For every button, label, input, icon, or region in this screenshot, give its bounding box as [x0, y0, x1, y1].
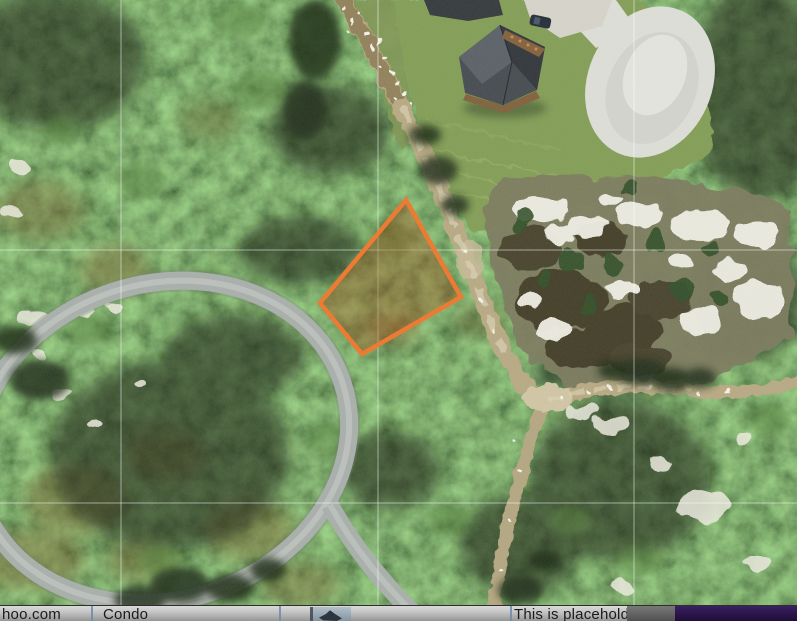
house-photo-icon — [319, 609, 342, 621]
cell-divider — [510, 606, 512, 621]
description-cell[interactable]: This is placehold — [514, 606, 629, 621]
grey-overlay-box — [627, 606, 675, 621]
listing-map-window: hoo.com Condo This is placehold — [0, 0, 797, 621]
email-cell[interactable]: hoo.com — [2, 606, 61, 621]
property-type-cell[interactable]: Condo — [103, 606, 148, 621]
photo-grain — [0, 0, 797, 606]
listing-row-bar: hoo.com Condo This is placehold — [0, 605, 797, 621]
thumbnail-edge — [310, 607, 313, 621]
map-viewport[interactable] — [0, 0, 797, 606]
cell-divider — [91, 606, 93, 621]
cell-divider — [279, 606, 281, 621]
dark-purple-panel — [675, 606, 797, 621]
listing-thumbnail[interactable] — [310, 607, 351, 621]
aerial-map[interactable] — [0, 0, 797, 606]
